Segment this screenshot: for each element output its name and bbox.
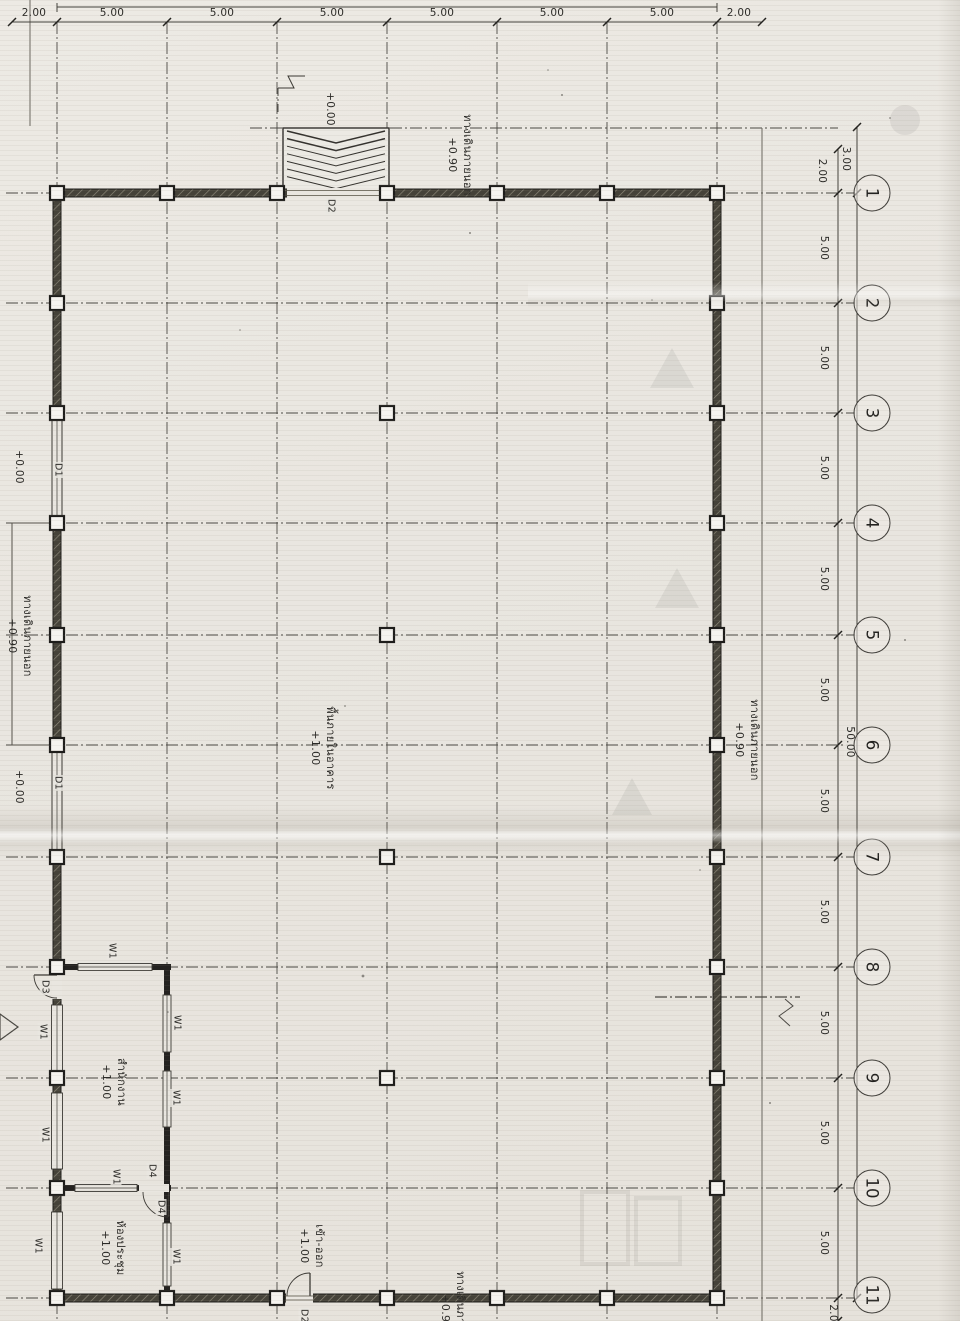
- column: [710, 1181, 724, 1195]
- grid-bubble-9: 9: [854, 1060, 891, 1097]
- column: [710, 850, 724, 864]
- label-walkway-top: ทางเดินภายนอก +0.90: [444, 114, 474, 195]
- grid-bubble-3: 3: [854, 395, 891, 432]
- column: [710, 186, 724, 200]
- dim-right-3m: 3.00: [840, 147, 852, 172]
- tag-window-w1: W1: [33, 1237, 44, 1255]
- dim-top-7: 2.00: [727, 7, 752, 19]
- dim-top-3: 5.00: [320, 7, 345, 19]
- tag-window-w1: W1: [111, 1168, 122, 1186]
- column: [50, 1291, 64, 1305]
- column: [710, 1291, 724, 1305]
- tag-window-w1: W1: [38, 1023, 49, 1041]
- dim-top-2: 5.00: [210, 7, 235, 19]
- dim-top-6: 5.00: [650, 7, 675, 19]
- entry-door-swing: [287, 1273, 310, 1296]
- edge-cut-arrow: [0, 1014, 18, 1040]
- tag-window-w1: W1: [107, 942, 118, 960]
- dim-right-1: 5.00: [818, 346, 830, 371]
- column: [50, 186, 64, 200]
- dim-top-1: 5.00: [100, 7, 125, 19]
- label-interior-floor: พื้นภายในอาคาร +1.00: [307, 706, 337, 789]
- scan-speckles: [167, 69, 906, 1104]
- plan-drawing: [0, 0, 960, 1321]
- column: [270, 1291, 284, 1305]
- column: [50, 738, 64, 752]
- column: [380, 186, 394, 200]
- tag-window-w1: W1: [171, 1089, 182, 1107]
- column: [380, 1071, 394, 1085]
- column: [710, 406, 724, 420]
- dim-right-7: 5.00: [818, 1011, 830, 1036]
- column: [50, 960, 64, 974]
- column: [270, 186, 284, 200]
- tag-door-d1-upper: D1: [53, 462, 64, 478]
- column: [710, 738, 724, 752]
- column: [50, 406, 64, 420]
- column: [710, 628, 724, 642]
- tag-window-w1: W1: [171, 1248, 182, 1266]
- grid-bubble-6: 6: [854, 727, 891, 764]
- column: [710, 516, 724, 530]
- column: [380, 850, 394, 864]
- dim-top-0: 2.00: [22, 7, 47, 19]
- door-d4-opening: [139, 1184, 169, 1192]
- grid-bubble-7: 7: [854, 839, 891, 876]
- column: [490, 186, 504, 200]
- column: [50, 850, 64, 864]
- label-ground-upper: +0.00: [13, 450, 25, 484]
- column: [380, 628, 394, 642]
- dim-right-8: 5.00: [818, 1121, 830, 1146]
- column: [710, 296, 724, 310]
- label-meeting-room: ห้องประชุม +1.00: [97, 1220, 127, 1275]
- grid-bubble-2: 2: [854, 285, 891, 322]
- grid-bubble-8: 8: [854, 949, 891, 986]
- label-walkway-right: ทางเดินภายนอก +0.90: [731, 699, 761, 780]
- column: [710, 1071, 724, 1085]
- dim-right-4: 5.00: [818, 678, 830, 703]
- dimension-ticks: [8, 18, 861, 1321]
- grid-bubble-4: 4: [854, 505, 891, 542]
- column: [160, 1291, 174, 1305]
- tag-door-d1-lower: D1: [53, 775, 64, 791]
- grid-bubble-11: 11: [854, 1277, 891, 1314]
- label-walkway-left: ทางเดินภายนอก +0.90: [4, 595, 34, 676]
- label-office: สำนักงาน +1.00: [98, 1058, 128, 1106]
- dim-top-total: 30.00: [426, 0, 458, 3]
- dim-right-2m: 2.00: [816, 159, 828, 184]
- tag-door-d4-b: D4: [156, 1199, 167, 1215]
- door-d3-opening: [52, 972, 62, 999]
- column: [50, 1071, 64, 1085]
- dim-right-3: 5.00: [818, 567, 830, 592]
- tag-window-w1: W1: [172, 1014, 183, 1032]
- column: [50, 296, 64, 310]
- dim-right-5: 5.00: [818, 789, 830, 814]
- dim-top-4: 5.00: [430, 7, 455, 19]
- column: [490, 1291, 504, 1305]
- dim-right-9: 5.00: [818, 1231, 830, 1256]
- tag-window-w1: W1: [40, 1126, 51, 1144]
- label-entry-exit: เข้า-ออก +1.00: [296, 1224, 326, 1267]
- grid-bubble-5: 5: [854, 617, 891, 654]
- column: [50, 628, 64, 642]
- column: [600, 186, 614, 200]
- column: [50, 516, 64, 530]
- dim-right-6: 5.00: [818, 900, 830, 925]
- grid-bubble-1: 1: [854, 175, 891, 212]
- dimension-lines: [12, 3, 857, 1321]
- tag-door-d4-a: D4: [147, 1163, 158, 1179]
- column: [160, 186, 174, 200]
- tag-entry-door: D2: [299, 1308, 310, 1321]
- label-ground-lower: +0.00: [13, 770, 25, 804]
- dim-right-below: 2.0: [827, 1304, 839, 1321]
- column: [380, 406, 394, 420]
- label-walkway-bottom: ทางเดินภายนอก +0.90: [437, 1271, 467, 1321]
- column: [710, 960, 724, 974]
- label-stair-level: +0.00: [324, 92, 336, 126]
- dim-top-5: 5.00: [540, 7, 565, 19]
- grid-lines: [6, 22, 855, 1321]
- dim-right-0: 5.00: [818, 236, 830, 261]
- column: [380, 1291, 394, 1305]
- column: [50, 1181, 64, 1195]
- column: [600, 1291, 614, 1305]
- tag-door-d2: D2: [326, 198, 337, 214]
- floor-plan-sheet: 30.00 2.00 5.00 5.00 5.00 5.00 5.00 5.00…: [0, 0, 960, 1321]
- tag-door-d3: D3: [40, 979, 51, 995]
- grid-bubble-10: 10: [854, 1170, 891, 1207]
- dim-right-2: 5.00: [818, 456, 830, 481]
